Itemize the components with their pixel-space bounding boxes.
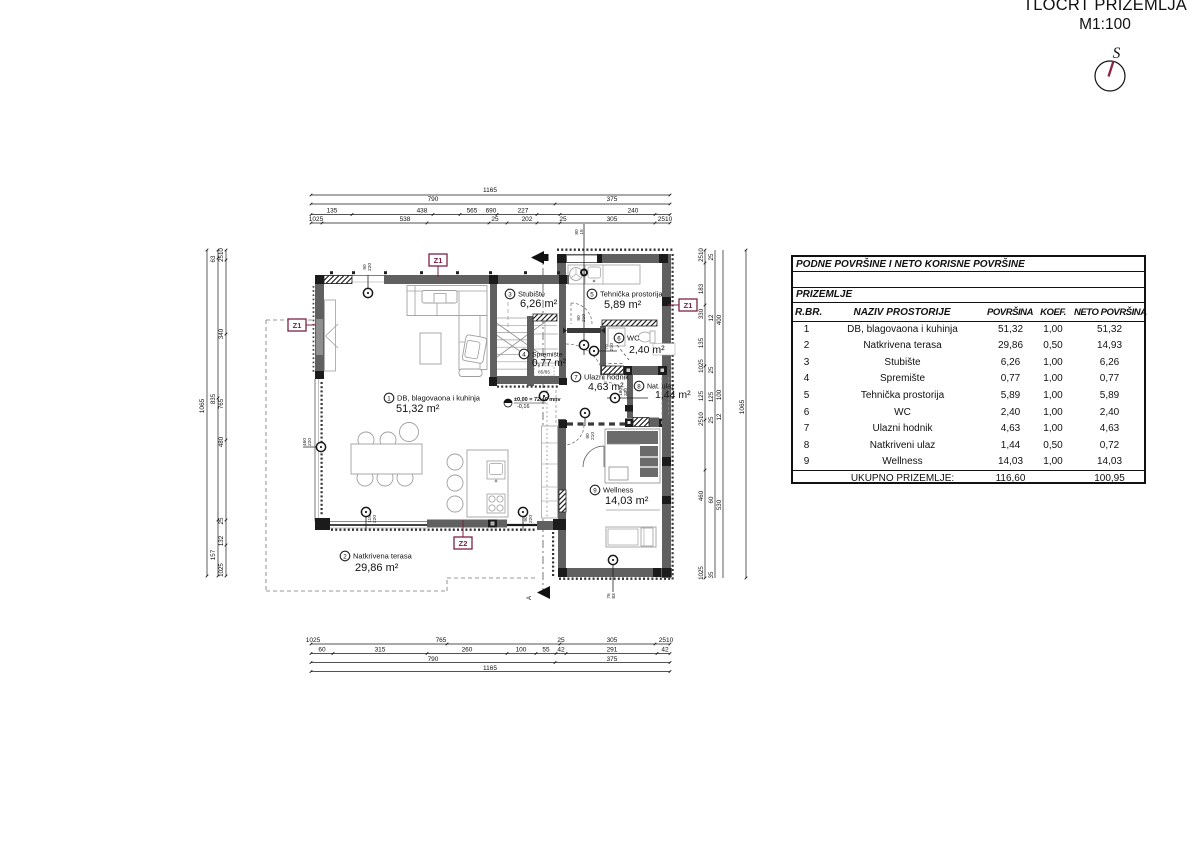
svg-text:210: 210 — [609, 343, 615, 351]
svg-text:2510: 2510 — [659, 637, 674, 644]
svg-text:135: 135 — [698, 337, 705, 348]
svg-text:9: 9 — [593, 487, 597, 494]
svg-text:25: 25 — [491, 216, 499, 223]
svg-text:5: 5 — [590, 291, 594, 298]
svg-text:Z2: Z2 — [459, 539, 468, 548]
svg-text:6,26 m²: 6,26 m² — [520, 298, 558, 310]
svg-text:42: 42 — [557, 647, 565, 654]
svg-text:S: S — [1113, 45, 1121, 62]
svg-text:Z1: Z1 — [684, 301, 693, 310]
svg-text:220: 220 — [367, 263, 373, 271]
svg-text:565: 565 — [467, 208, 478, 215]
svg-text:15: 15 — [579, 229, 585, 235]
svg-text:12: 12 — [716, 413, 723, 420]
svg-text:35: 35 — [708, 571, 715, 578]
svg-text:1: 1 — [387, 395, 391, 402]
svg-text:375: 375 — [607, 196, 618, 203]
svg-text:790: 790 — [428, 196, 439, 203]
svg-text:340: 340 — [218, 328, 225, 339]
svg-text:1165: 1165 — [483, 187, 497, 194]
svg-text:125: 125 — [708, 391, 715, 402]
svg-text:60: 60 — [708, 496, 715, 503]
svg-text:765: 765 — [218, 398, 225, 409]
svg-text:538: 538 — [400, 216, 411, 223]
svg-text:480: 480 — [218, 436, 225, 447]
svg-text:125: 125 — [698, 390, 705, 401]
svg-text:790: 790 — [428, 656, 439, 663]
svg-text:220: 220 — [372, 515, 378, 523]
svg-text:305: 305 — [607, 637, 618, 644]
svg-text:1,44 m²: 1,44 m² — [655, 389, 691, 401]
svg-text:-0,16: -0,16 — [517, 404, 530, 410]
svg-text:Wellness: Wellness — [603, 486, 634, 495]
svg-text:210: 210 — [590, 432, 596, 440]
svg-text:2510: 2510 — [658, 216, 673, 223]
svg-text:220: 220 — [528, 515, 534, 523]
svg-text:1025: 1025 — [698, 359, 705, 373]
svg-text:530: 530 — [716, 499, 723, 510]
svg-text:835: 835 — [210, 393, 217, 404]
svg-text:5,89 m²: 5,89 m² — [604, 299, 642, 311]
svg-text:460: 460 — [698, 490, 705, 501]
svg-text:690: 690 — [486, 208, 497, 215]
svg-text:2510: 2510 — [218, 248, 225, 262]
svg-text:375: 375 — [607, 656, 618, 663]
svg-text:1165: 1165 — [483, 665, 497, 672]
svg-text:29,86 m²: 29,86 m² — [355, 562, 399, 574]
svg-text:7: 7 — [574, 374, 578, 381]
svg-text:WC: WC — [627, 334, 640, 343]
svg-text:85/85: 85/85 — [538, 370, 550, 376]
svg-text:2,40 m²: 2,40 m² — [629, 344, 665, 356]
svg-text:4: 4 — [522, 351, 526, 358]
svg-text:291: 291 — [607, 647, 618, 654]
svg-text:25: 25 — [708, 416, 715, 423]
svg-text:1025: 1025 — [698, 566, 705, 580]
svg-text:135: 135 — [327, 208, 338, 215]
svg-text:438: 438 — [417, 208, 428, 215]
svg-text:100: 100 — [516, 647, 527, 654]
svg-text:42: 42 — [661, 647, 669, 654]
svg-text:51,32 m²: 51,32 m² — [396, 403, 440, 415]
svg-text:83: 83 — [611, 593, 617, 599]
svg-text:100: 100 — [716, 389, 723, 400]
svg-text:1025: 1025 — [309, 216, 324, 223]
svg-text:25: 25 — [559, 216, 567, 223]
svg-text:±0,00 = 72,40 mnv: ±0,00 = 72,40 mnv — [514, 397, 562, 403]
svg-text:Tehnička prostorija: Tehnička prostorija — [600, 290, 663, 299]
svg-text:55: 55 — [542, 647, 550, 654]
svg-text:230: 230 — [623, 388, 629, 396]
svg-text:Natkrivena terasa: Natkrivena terasa — [353, 552, 413, 561]
svg-text:6: 6 — [617, 335, 621, 342]
svg-text:12: 12 — [708, 314, 715, 321]
svg-text:Z1: Z1 — [293, 321, 302, 330]
svg-text:305: 305 — [607, 216, 618, 223]
svg-text:DB, blagovaona i kuhinja: DB, blagovaona i kuhinja — [397, 394, 481, 403]
svg-text:25: 25 — [557, 637, 565, 644]
svg-text:1065: 1065 — [199, 398, 206, 413]
svg-text:260: 260 — [462, 647, 473, 654]
svg-text:25: 25 — [708, 366, 715, 373]
svg-text:400: 400 — [716, 314, 723, 325]
svg-text:1025: 1025 — [218, 563, 225, 577]
svg-text:60: 60 — [318, 647, 326, 654]
svg-text:765: 765 — [436, 637, 447, 644]
svg-text:183: 183 — [698, 283, 705, 294]
svg-text:227: 227 — [518, 208, 529, 215]
svg-text:2510: 2510 — [698, 412, 705, 426]
svg-text:220: 220 — [307, 438, 313, 446]
svg-text:210: 210 — [581, 314, 587, 322]
svg-text:14,03 m²: 14,03 m² — [605, 495, 649, 507]
svg-text:0,77 m²: 0,77 m² — [532, 358, 567, 369]
svg-text:Z1: Z1 — [434, 256, 443, 265]
svg-text:1065: 1065 — [739, 399, 746, 414]
svg-text:3: 3 — [508, 291, 512, 298]
svg-text:1025: 1025 — [306, 637, 321, 644]
svg-text:A: A — [527, 596, 533, 600]
svg-text:330: 330 — [698, 308, 705, 319]
svg-text:25: 25 — [708, 253, 715, 260]
svg-text:8: 8 — [637, 383, 641, 390]
svg-text:202: 202 — [522, 216, 533, 223]
svg-text:2: 2 — [343, 553, 347, 560]
svg-text:63: 63 — [210, 255, 217, 262]
svg-text:132: 132 — [218, 535, 225, 546]
svg-text:315: 315 — [375, 647, 386, 654]
svg-text:25: 25 — [218, 517, 225, 524]
svg-text:240: 240 — [628, 208, 639, 215]
svg-text:157: 157 — [210, 549, 217, 560]
svg-text:2510: 2510 — [698, 248, 705, 262]
